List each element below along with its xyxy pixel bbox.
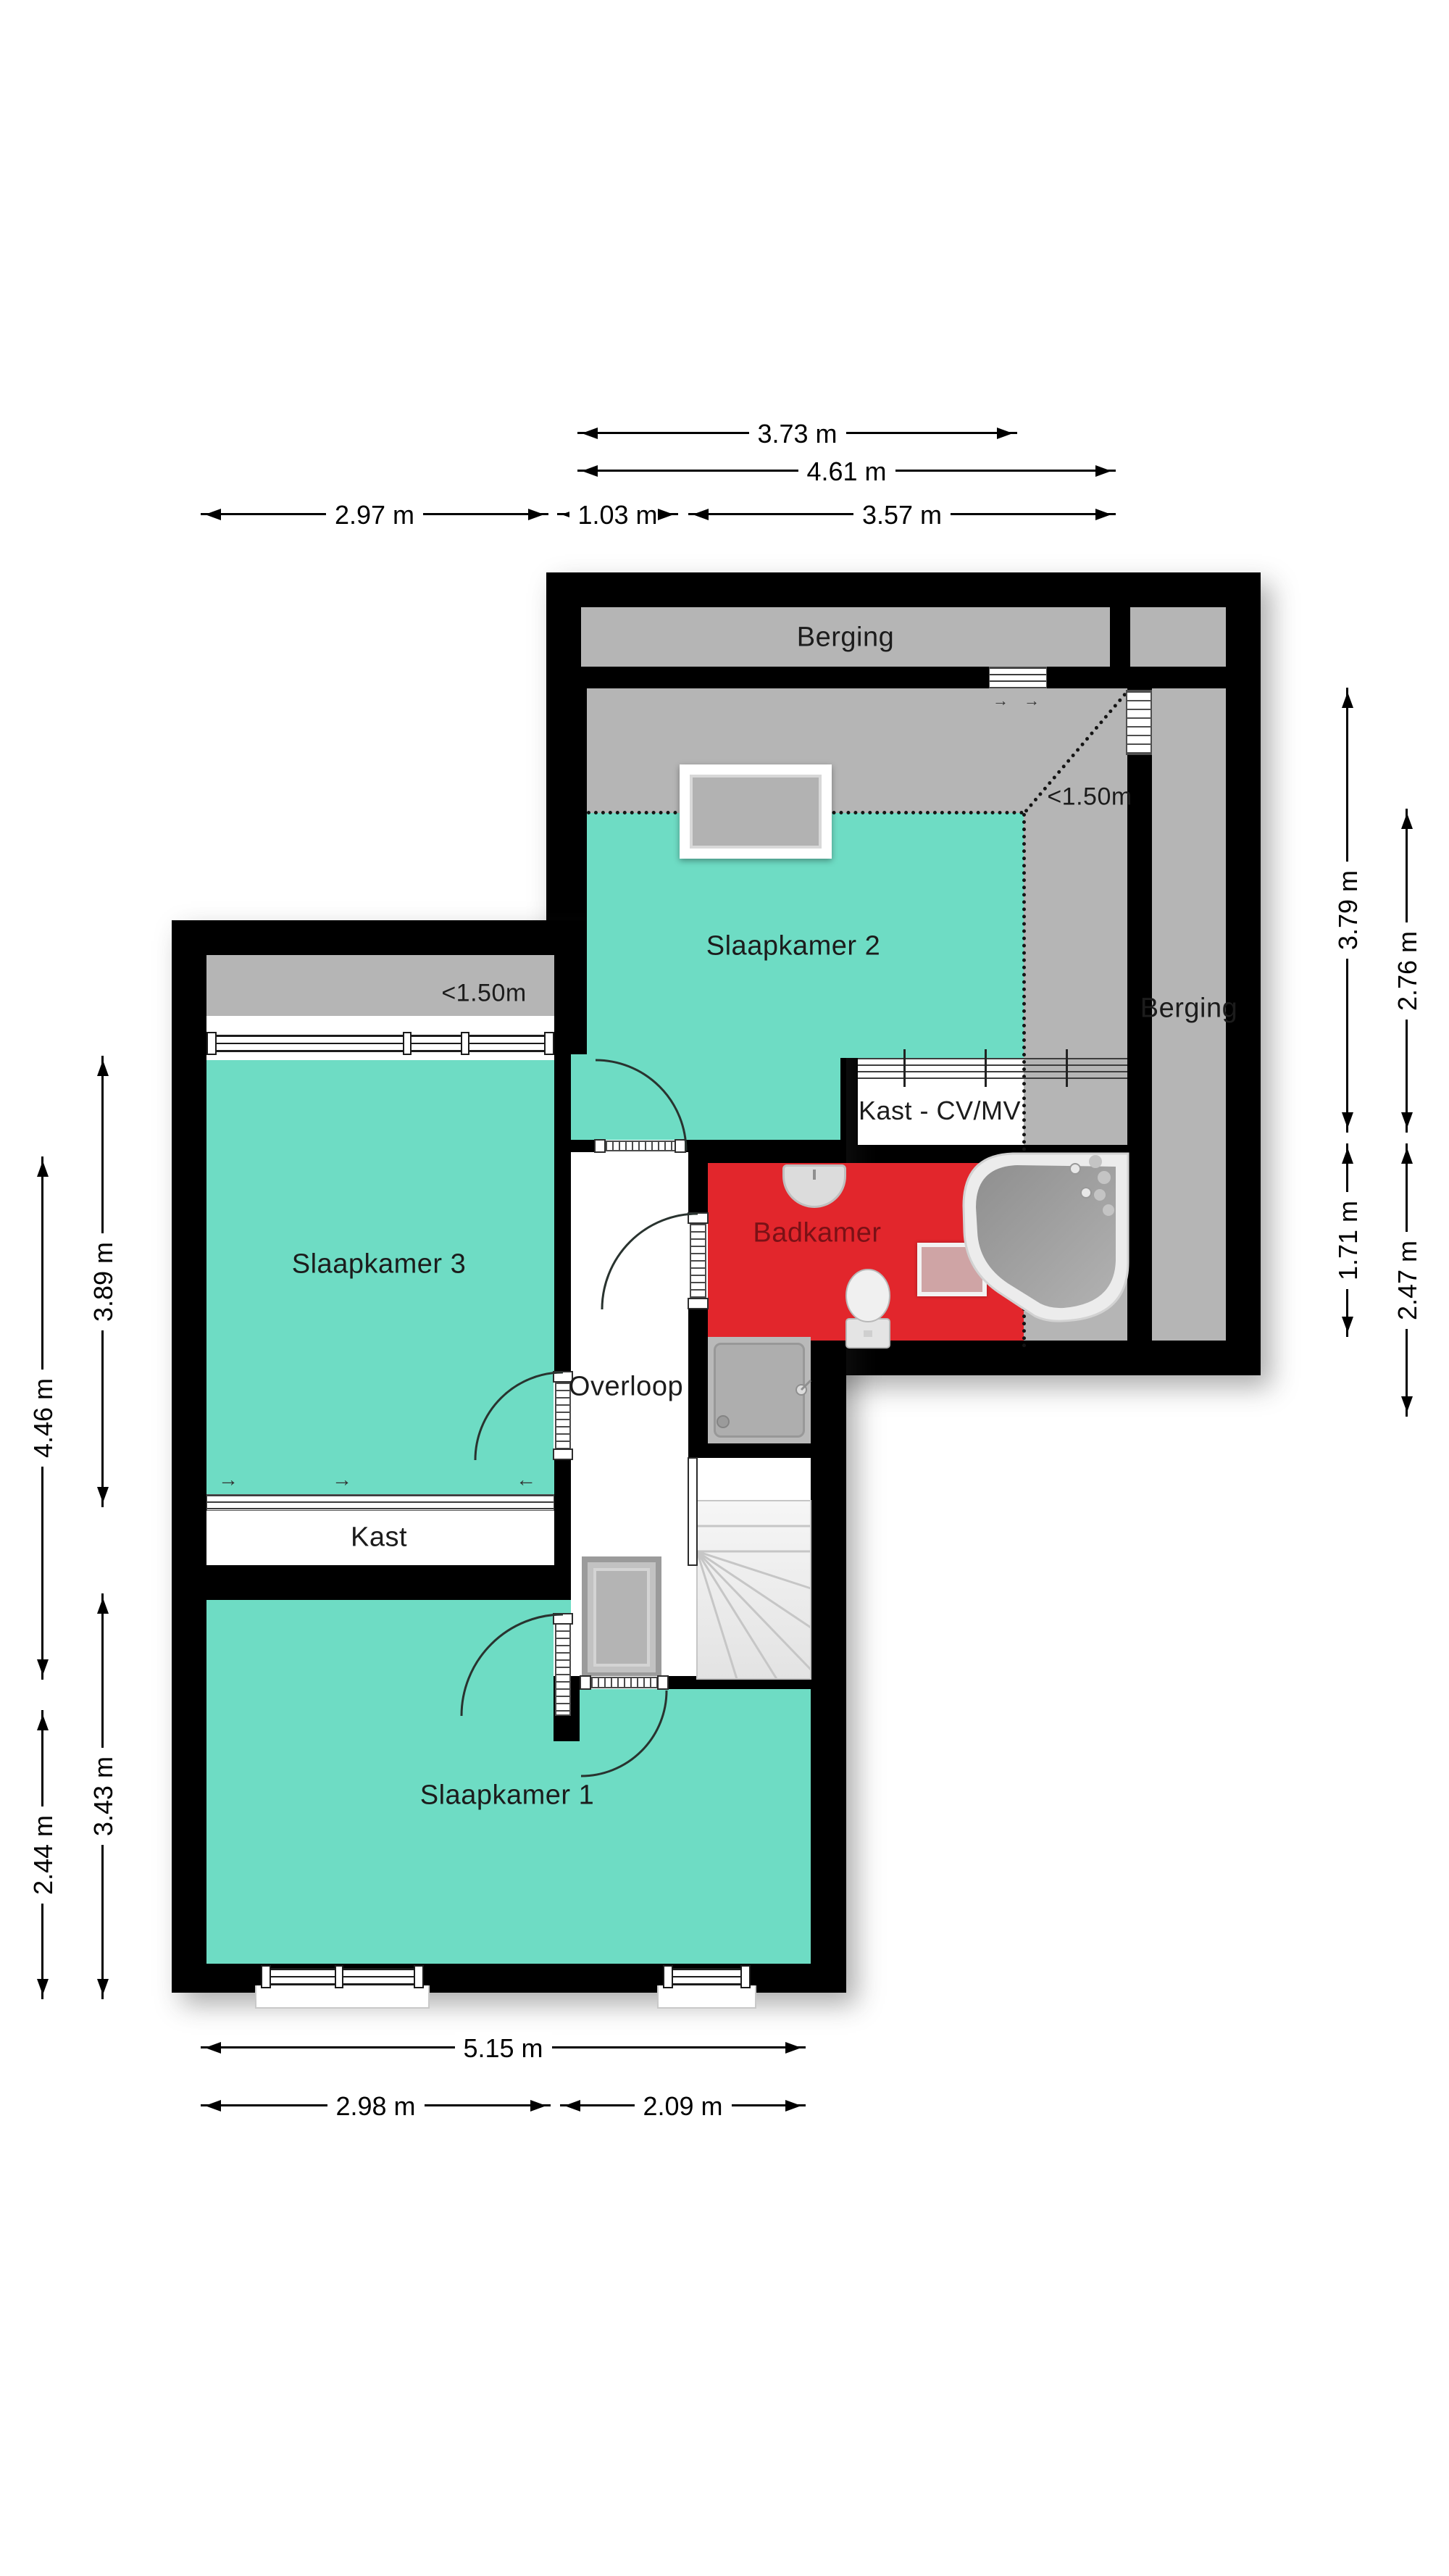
dim-right-276: 2.76 m bbox=[1406, 809, 1408, 1133]
dim-left-244: 2.44 m bbox=[41, 1710, 43, 1999]
toilet-flush-button bbox=[864, 1330, 872, 1337]
room-label-overloop: Overloop bbox=[569, 1372, 683, 1403]
door-arc-slaapkamer1 bbox=[581, 1691, 667, 1776]
dim-top-357: 3.57 m bbox=[688, 513, 1116, 515]
bath-detail bbox=[1094, 1189, 1106, 1201]
dim-left-446: 4.46 m bbox=[41, 1156, 43, 1680]
plan-vector-layer bbox=[0, 0, 1449, 2576]
door-arc-slaapkamer3 bbox=[475, 1372, 563, 1460]
room-label-kast: Kast bbox=[351, 1522, 407, 1554]
room-label-kast-cv: Kast - CV/MV bbox=[859, 1096, 1021, 1126]
dim-label: 2.97 m bbox=[326, 499, 423, 532]
shower-drain bbox=[717, 1416, 729, 1427]
dim-left-343: 3.43 m bbox=[101, 1593, 104, 1999]
dim-label: 1.71 m bbox=[1332, 1191, 1365, 1288]
room-label-badkamer: Badkamer bbox=[753, 1218, 881, 1249]
dim-label: 3.73 m bbox=[748, 417, 845, 451]
dim-label: 4.46 m bbox=[27, 1370, 60, 1467]
door-arc-slaapkamer1-side bbox=[462, 1614, 563, 1716]
floor-plan: → → → → ← bbox=[0, 0, 1449, 2576]
low-ceiling-label-slaapkamer3: <1.50m bbox=[441, 980, 526, 1008]
dim-bottom-209: 2.09 m bbox=[560, 2104, 806, 2106]
dim-label: 2.47 m bbox=[1391, 1231, 1424, 1328]
dim-right-379: 3.79 m bbox=[1346, 688, 1348, 1133]
bath-detail bbox=[1089, 1155, 1102, 1168]
dim-label: 2.76 m bbox=[1391, 922, 1424, 1019]
dim-label: 3.79 m bbox=[1332, 862, 1365, 959]
room-label-slaapkamer1: Slaapkamer 1 bbox=[420, 1780, 594, 1812]
room-label-berging-right: Berging bbox=[1140, 993, 1237, 1025]
dim-label: 4.61 m bbox=[798, 455, 895, 488]
low-ceiling-label-slaapkamer2: <1.50m bbox=[1047, 783, 1132, 812]
dim-top-461: 4.61 m bbox=[577, 470, 1116, 472]
toilet bbox=[846, 1270, 890, 1348]
dim-label: 2.09 m bbox=[634, 2090, 731, 2123]
bath-detail bbox=[1098, 1171, 1111, 1184]
door-arcs bbox=[462, 1060, 698, 1776]
bathtub bbox=[964, 1154, 1128, 1321]
door-arc-slaapkamer2 bbox=[596, 1060, 686, 1151]
dim-label: 2.44 m bbox=[27, 1806, 60, 1903]
dim-top-297: 2.97 m bbox=[201, 513, 548, 515]
shower-details bbox=[717, 1380, 811, 1427]
dim-label: 2.98 m bbox=[327, 2090, 424, 2123]
bath-faucet-knob bbox=[1081, 1188, 1091, 1198]
dim-top-373: 3.73 m bbox=[577, 432, 1017, 434]
stair-handrail bbox=[688, 1458, 697, 1565]
dim-label: 5.15 m bbox=[454, 2032, 551, 2065]
room-label-berging-top: Berging bbox=[797, 622, 894, 654]
room-label-slaapkamer3: Slaapkamer 3 bbox=[292, 1249, 466, 1280]
dim-label: 3.89 m bbox=[87, 1233, 120, 1330]
dim-left-389: 3.89 m bbox=[101, 1056, 104, 1507]
dim-top-103: 1.03 m bbox=[557, 513, 678, 515]
dim-label: 1.03 m bbox=[569, 499, 666, 532]
door-arc-badkamer bbox=[602, 1214, 698, 1309]
staircase bbox=[688, 1458, 811, 1679]
dim-right-247: 2.47 m bbox=[1406, 1143, 1408, 1417]
bath-faucet-knob bbox=[1070, 1164, 1080, 1174]
room-label-slaapkamer2: Slaapkamer 2 bbox=[706, 931, 880, 962]
dim-bottom-515: 5.15 m bbox=[201, 2046, 806, 2048]
dim-bottom-298: 2.98 m bbox=[201, 2104, 551, 2106]
bath-detail bbox=[1103, 1204, 1114, 1216]
dim-right-171: 1.71 m bbox=[1346, 1143, 1348, 1337]
dim-label: 3.57 m bbox=[853, 499, 951, 532]
dim-label: 3.43 m bbox=[87, 1748, 120, 1845]
